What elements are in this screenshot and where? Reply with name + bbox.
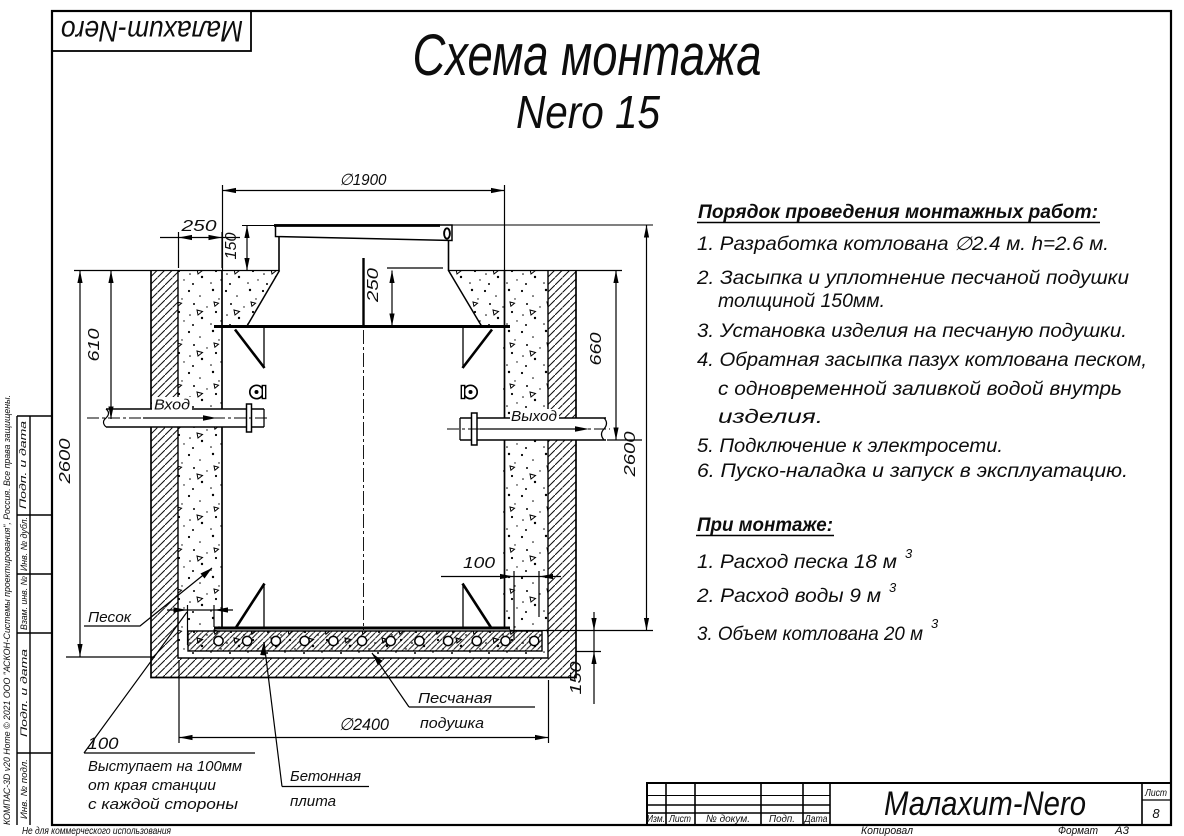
svg-text:1. Расход песка 18 м: 1. Расход песка 18 м — [697, 552, 897, 573]
svg-text:Схема монтажа: Схема монтажа — [413, 23, 762, 88]
svg-text:150: 150 — [223, 232, 240, 259]
svg-text:Малахит-Nero: Малахит-Nero — [884, 785, 1086, 823]
svg-text:Лист: Лист — [1144, 787, 1167, 799]
svg-text:Не для коммерческого использов: Не для коммерческого использования — [22, 825, 171, 836]
svg-text:Копировал: Копировал — [861, 825, 913, 836]
svg-text:2600: 2600 — [622, 431, 639, 477]
svg-text:Вход: Вход — [154, 397, 190, 414]
svg-text:Порядок проведения монтажных р: Порядок проведения монтажных работ: — [698, 202, 1098, 223]
svg-text:∅2400: ∅2400 — [339, 715, 390, 734]
svg-text:При монтаже:: При монтаже: — [697, 515, 833, 536]
svg-text:6. Пуско-наладка и запуск в эк: 6. Пуско-наладка и запуск в эксплуатацию… — [697, 461, 1128, 482]
svg-text:3: 3 — [931, 616, 939, 631]
svg-text:Инв. № подл.: Инв. № подл. — [19, 759, 29, 819]
svg-text:660: 660 — [588, 332, 605, 365]
svg-text:Nero 15: Nero 15 — [516, 86, 660, 138]
svg-text:100: 100 — [88, 734, 120, 753]
svg-text:610: 610 — [86, 328, 103, 361]
svg-text:Песок: Песок — [88, 609, 132, 626]
svg-text:толщиной 150мм.: толщиной 150мм. — [718, 291, 885, 312]
svg-text:2600: 2600 — [57, 438, 74, 484]
svg-text:100: 100 — [463, 555, 495, 572]
svg-text:Подп. и дата: Подп. и дата — [18, 421, 28, 509]
svg-text:2. Расход воды 9 м: 2. Расход воды 9 м — [696, 586, 881, 607]
svg-text:Подп. и дата: Подп. и дата — [19, 649, 29, 737]
svg-text:3. Установка изделия на песчан: 3. Установка изделия на песчаную подушки… — [697, 321, 1127, 342]
svg-text:№ докум.: № докум. — [706, 813, 750, 825]
svg-text:с каждой стороны: с каждой стороны — [88, 796, 238, 813]
svg-text:с одновременной заливкой водой: с одновременной заливкой водой внутрь — [718, 379, 1122, 400]
svg-text:подушка: подушка — [420, 715, 484, 732]
svg-text:Инв. № дубл.: Инв. № дубл. — [19, 517, 29, 571]
svg-text:8: 8 — [1152, 806, 1160, 821]
svg-text:250: 250 — [180, 218, 216, 235]
svg-text:КОМПАС-3D v20 Home © 2021 ООО: КОМПАС-3D v20 Home © 2021 ООО "АСКОН-Сис… — [2, 395, 12, 825]
svg-text:Дата: Дата — [804, 813, 828, 825]
svg-text:2. Засыпка и уплотнение песчан: 2. Засыпка и уплотнение песчаной подушки — [696, 268, 1130, 289]
svg-text:А3: А3 — [1114, 825, 1130, 836]
svg-text:Малахит-Nero: Малахит-Nero — [61, 14, 243, 47]
svg-text:3: 3 — [905, 546, 913, 561]
svg-text:5. Подключение к электросети.: 5. Подключение к электросети. — [697, 436, 1003, 457]
svg-text:плита: плита — [290, 793, 336, 810]
svg-text:3. Объем котлована 20 м: 3. Объем котлована 20 м — [697, 624, 923, 645]
svg-text:Песчаная: Песчаная — [418, 690, 492, 707]
svg-text:Лист: Лист — [668, 813, 691, 825]
svg-text:Взам. инв. №: Взам. инв. № — [19, 576, 29, 630]
svg-text:3: 3 — [889, 580, 897, 595]
svg-text:Выступает на 100мм: Выступает на 100мм — [88, 758, 242, 775]
svg-text:Формат: Формат — [1058, 825, 1098, 836]
svg-text:4. Обратная засыпка пазух котл: 4. Обратная засыпка пазух котлована песк… — [697, 350, 1147, 371]
svg-text:Подп.: Подп. — [769, 813, 795, 825]
svg-text:изделия.: изделия. — [718, 407, 823, 428]
svg-text:Изм.: Изм. — [647, 813, 665, 825]
svg-text:от края станции: от края станции — [88, 777, 217, 794]
svg-text:1. Разработка котлована ∅2.4 м: 1. Разработка котлована ∅2.4 м. h=2.6 м. — [697, 234, 1109, 255]
svg-text:Выход: Выход — [511, 408, 557, 425]
svg-text:Бетонная: Бетонная — [290, 768, 361, 785]
svg-text:250: 250 — [365, 268, 382, 303]
svg-text:∅1900: ∅1900 — [340, 172, 387, 189]
svg-text:150: 150 — [568, 661, 585, 694]
